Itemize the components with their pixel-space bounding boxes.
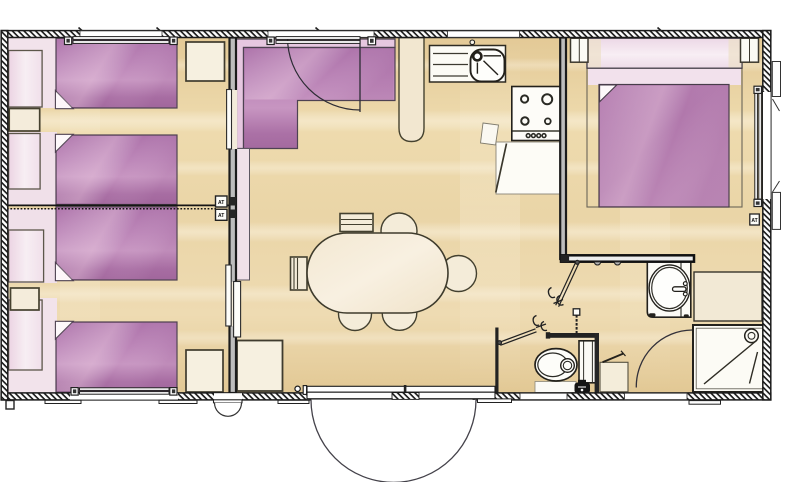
svg-text:AT: AT	[218, 213, 224, 219]
svg-text:AT: AT	[751, 218, 757, 224]
svg-text:AT: AT	[218, 200, 224, 206]
